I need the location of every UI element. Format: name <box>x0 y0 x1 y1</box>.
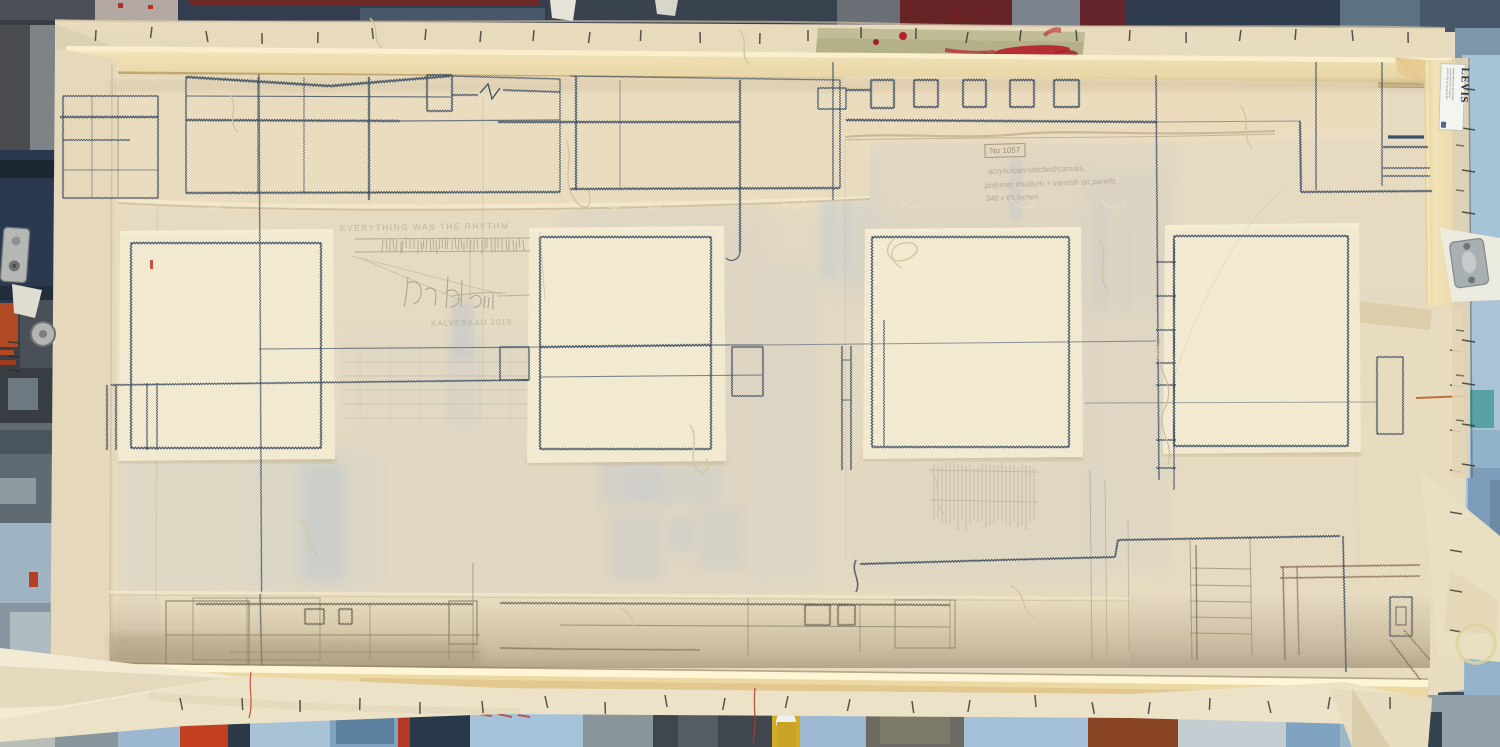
svg-text:No 1057: No 1057 <box>990 146 1021 156</box>
svg-text:LEVIS: LEVIS <box>1458 67 1471 103</box>
